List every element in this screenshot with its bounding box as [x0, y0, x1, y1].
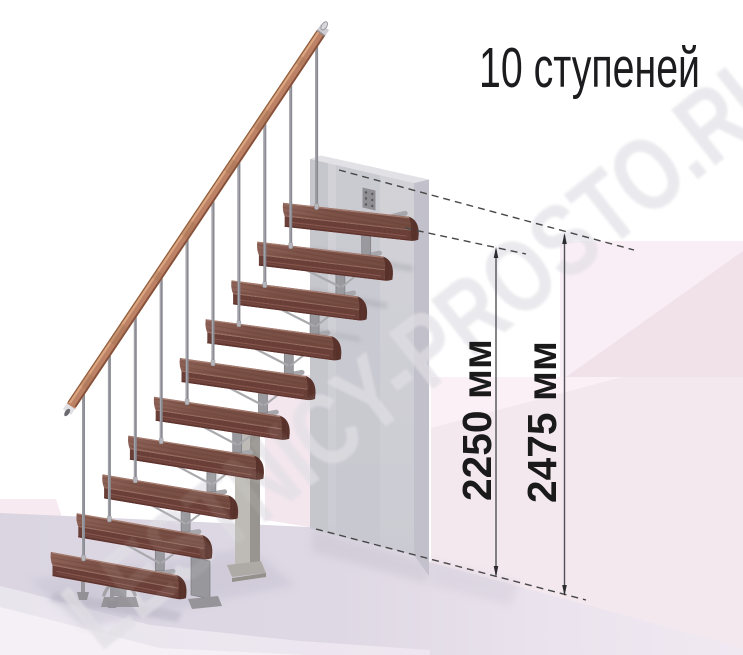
svg-text:10 ступеней: 10 ступеней — [479, 36, 700, 100]
svg-text:2250 мм: 2250 мм — [454, 339, 500, 501]
svg-text:2475 мм: 2475 мм — [519, 341, 565, 503]
